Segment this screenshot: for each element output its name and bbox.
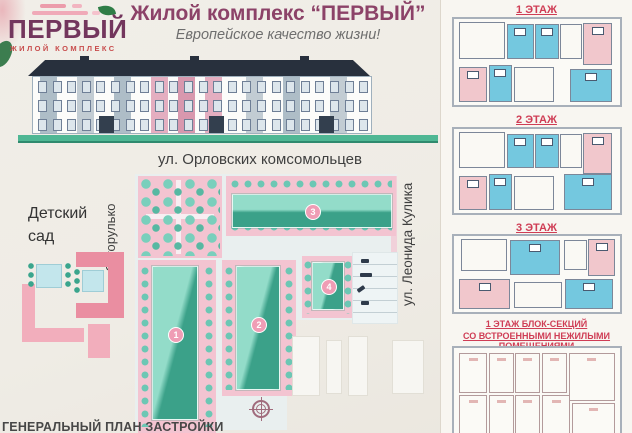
entrance-door xyxy=(99,116,114,133)
site-plan: ул. Орловских комсомольцев ул. Загорульк… xyxy=(0,148,440,433)
floor-plan-2 xyxy=(452,127,622,215)
window xyxy=(38,100,47,112)
kindergarten-building xyxy=(108,252,124,318)
room-blue xyxy=(564,174,612,209)
room-outline xyxy=(459,353,487,393)
building-2: 2 xyxy=(236,266,280,390)
window xyxy=(67,119,76,131)
kindergarten-building xyxy=(22,328,84,342)
room-blue xyxy=(510,240,560,275)
window xyxy=(199,100,208,112)
trees xyxy=(64,262,72,289)
entrance-door xyxy=(209,116,224,133)
window xyxy=(140,81,149,93)
window xyxy=(67,81,76,93)
logo: ПЕРВЫЙ ЖИЛОЙ КОМПЛЕКС xyxy=(2,2,122,60)
trees xyxy=(140,266,150,427)
floor-plan-4 xyxy=(452,346,622,433)
room-outline xyxy=(569,353,615,400)
window xyxy=(184,81,193,93)
room-blue xyxy=(507,134,534,168)
room-blue xyxy=(489,174,512,209)
window xyxy=(359,100,368,112)
window xyxy=(184,100,193,112)
floor-plan-label-2: 2 ЭТАЖ xyxy=(441,114,632,126)
window xyxy=(184,119,193,131)
window xyxy=(272,100,281,112)
room-outline xyxy=(542,395,570,433)
billboard: ПЕРВЫЙ ЖИЛОЙ КОМПЛЕКС Жилой комплекс “ПЕ… xyxy=(0,0,632,433)
trees xyxy=(343,260,351,314)
window xyxy=(53,100,62,112)
room-white xyxy=(560,24,582,58)
floor-plan-1 xyxy=(452,17,622,107)
window xyxy=(330,81,339,93)
window xyxy=(345,100,354,112)
window xyxy=(82,119,91,131)
trees xyxy=(73,268,81,295)
floor-plan-label-3: 3 ЭТАЖ xyxy=(441,222,632,234)
room-pink xyxy=(583,23,611,64)
room-pink xyxy=(459,279,510,309)
future-building xyxy=(348,336,368,396)
building-block-4: 4 xyxy=(302,256,352,318)
window xyxy=(199,81,208,93)
room-outline xyxy=(572,403,615,433)
room-outline xyxy=(542,353,567,393)
compass-rose xyxy=(252,400,270,418)
window xyxy=(38,119,47,131)
room-outline xyxy=(489,395,514,433)
page-title: Жилой комплекс “ПЕРВЫЙ” xyxy=(116,2,440,26)
window xyxy=(199,119,208,131)
window xyxy=(359,81,368,93)
floor-plan-3 xyxy=(452,234,622,314)
header: Жилой комплекс “ПЕРВЫЙ” Европейское каче… xyxy=(116,2,440,43)
ground-strip xyxy=(18,135,438,143)
building-1: 1 xyxy=(152,266,198,420)
window xyxy=(315,100,324,112)
window xyxy=(140,119,149,131)
room-white xyxy=(514,67,554,101)
trees xyxy=(303,260,311,314)
parking-lot xyxy=(352,252,398,324)
trees xyxy=(204,266,214,427)
logo-dash xyxy=(72,4,82,8)
building-3: 3 xyxy=(232,194,392,228)
room-blue xyxy=(565,279,613,309)
window xyxy=(213,100,222,112)
room-pink xyxy=(459,67,487,101)
window xyxy=(38,81,47,93)
window xyxy=(82,81,91,93)
window xyxy=(155,100,164,112)
window xyxy=(169,100,178,112)
building-4: 4 xyxy=(312,262,344,310)
window xyxy=(126,81,135,93)
roof xyxy=(28,60,370,76)
room-outline xyxy=(459,395,487,433)
window xyxy=(155,81,164,93)
brand-tagline: ЖИЛОЙ КОМПЛЕКС xyxy=(10,44,117,53)
future-building xyxy=(326,340,342,394)
trees xyxy=(140,178,220,256)
window xyxy=(228,81,237,93)
window xyxy=(67,100,76,112)
room-blue xyxy=(535,134,558,168)
street-label-right: ул. Леонида Кулика xyxy=(400,166,415,306)
building-block-1: 1 xyxy=(138,260,216,433)
window xyxy=(257,100,266,112)
kindergarten-court xyxy=(82,270,104,292)
page-subtitle: Европейское качество жизни! xyxy=(116,27,440,43)
window xyxy=(140,100,149,112)
trees xyxy=(224,266,234,390)
car-icon xyxy=(361,259,369,263)
room-white xyxy=(459,22,505,58)
building-number: 3 xyxy=(305,204,321,220)
window xyxy=(242,119,251,131)
entrance-door xyxy=(319,116,334,133)
window xyxy=(286,81,295,93)
window xyxy=(155,119,164,131)
car-icon xyxy=(360,273,372,277)
floor-plans-panel: 1 ЭТАЖ 2 ЭТАЖ 3 ЭТАЖ 1 ЭТАЖ БЛОК-СЕКЦИЙ … xyxy=(440,0,632,433)
logo-dash xyxy=(40,4,66,8)
window xyxy=(111,100,120,112)
window xyxy=(315,81,324,93)
trees xyxy=(27,262,35,289)
brand-name: ПЕРВЫЙ xyxy=(8,14,127,45)
future-building xyxy=(292,336,320,396)
floor-plan-label-4a: 1 ЭТАЖ БЛОК-СЕКЦИЙ xyxy=(441,319,632,329)
window xyxy=(96,81,105,93)
window xyxy=(257,81,266,93)
window xyxy=(53,119,62,131)
room-blue xyxy=(535,24,558,58)
room-blue xyxy=(507,24,534,58)
room-outline xyxy=(515,353,540,393)
kindergarten-court xyxy=(36,264,62,288)
window xyxy=(96,100,105,112)
room-white xyxy=(461,239,507,271)
window xyxy=(126,100,135,112)
window xyxy=(301,81,310,93)
facade xyxy=(32,76,372,134)
window xyxy=(345,119,354,131)
room-blue xyxy=(570,69,612,102)
room-pink xyxy=(588,239,615,275)
window xyxy=(272,81,281,93)
building-block-2: 2 xyxy=(222,260,296,396)
window xyxy=(286,119,295,131)
building-number: 2 xyxy=(251,317,267,333)
window xyxy=(82,100,91,112)
car-icon xyxy=(357,285,366,293)
window xyxy=(286,100,295,112)
window xyxy=(257,119,266,131)
room-white xyxy=(514,282,562,309)
room-white xyxy=(560,134,582,168)
window xyxy=(169,81,178,93)
room-pink xyxy=(583,133,611,173)
kindergarten-label: Детский сад xyxy=(28,202,87,248)
window xyxy=(301,100,310,112)
window xyxy=(242,100,251,112)
kindergarten-building xyxy=(76,252,110,267)
room-white xyxy=(514,176,554,210)
park-block xyxy=(138,176,222,258)
window xyxy=(242,81,251,93)
room-pink xyxy=(459,176,487,210)
car-icon xyxy=(361,301,369,305)
room-outline xyxy=(515,395,540,433)
window xyxy=(228,119,237,131)
map-caption: ГЕНЕРАЛЬНЫЙ ПЛАН ЗАСТРОЙКИ xyxy=(2,420,224,433)
window xyxy=(111,81,120,93)
window xyxy=(53,81,62,93)
building-number: 1 xyxy=(168,327,184,343)
window xyxy=(345,81,354,93)
window xyxy=(126,119,135,131)
building-number: 4 xyxy=(321,279,337,295)
room-white xyxy=(564,240,587,270)
window xyxy=(213,81,222,93)
building-elevation xyxy=(18,56,438,148)
street-label-top: ул. Орловских комсомольцев xyxy=(95,151,425,168)
floor-plan-label-1: 1 ЭТАЖ xyxy=(441,4,632,16)
kindergarten-building xyxy=(76,303,110,318)
window xyxy=(301,119,310,131)
trees xyxy=(230,179,392,189)
future-building xyxy=(392,340,424,394)
building-block-3: 3 xyxy=(226,176,396,236)
window xyxy=(359,119,368,131)
window xyxy=(330,100,339,112)
window xyxy=(228,100,237,112)
window xyxy=(169,119,178,131)
room-white xyxy=(459,132,505,167)
room-blue xyxy=(489,65,512,101)
room-outline xyxy=(489,353,514,393)
window xyxy=(272,119,281,131)
kindergarten-building xyxy=(88,324,110,358)
